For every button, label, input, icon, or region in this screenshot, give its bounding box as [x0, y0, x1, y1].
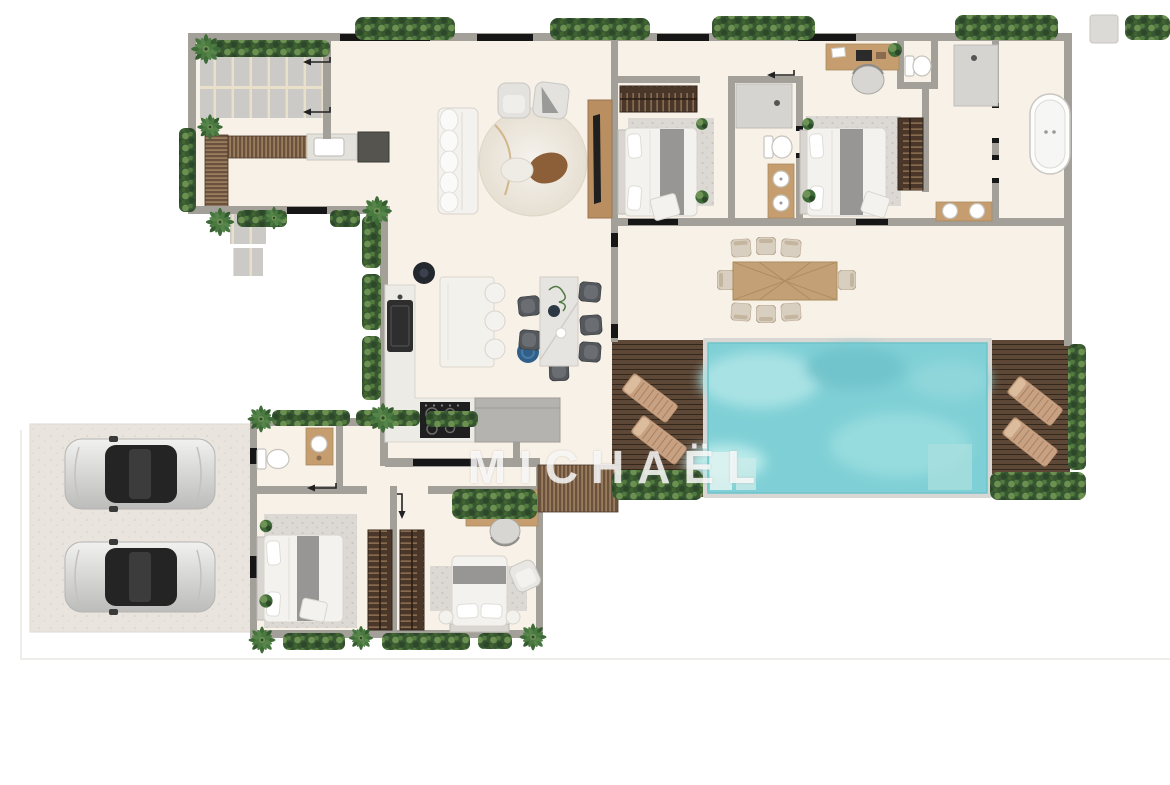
palm-tree	[206, 208, 234, 236]
hedge	[362, 274, 381, 330]
floor-plan-drawing	[0, 0, 1170, 785]
papers	[832, 47, 846, 57]
east-wall	[1064, 33, 1072, 346]
vanity-sink	[970, 204, 985, 219]
hedge	[712, 16, 815, 40]
bath-divider-c	[992, 180, 999, 222]
garage-door-mark	[250, 448, 257, 464]
palm-tree	[362, 196, 392, 226]
hedge	[355, 17, 455, 40]
palm-tree	[249, 627, 276, 654]
outdoor-chair	[780, 238, 801, 258]
pillow	[627, 186, 642, 211]
bar-stools	[485, 283, 505, 359]
potted-plant	[695, 190, 708, 203]
wood-bench-vertical	[205, 135, 228, 209]
toilet-wc	[905, 56, 931, 76]
bar-stool	[485, 311, 505, 331]
door-stop	[992, 155, 999, 160]
terrace-door-glass	[287, 207, 327, 214]
shower-drain	[774, 100, 780, 106]
toilet	[257, 449, 289, 469]
tv-console	[588, 100, 612, 218]
dining-table	[540, 277, 578, 366]
desk-plant	[888, 43, 902, 57]
bedroom-wing-south-wall	[611, 218, 1072, 226]
potted-plant	[260, 520, 272, 532]
outdoor-chair	[730, 238, 751, 257]
bath-divider-b	[992, 143, 999, 157]
watermark-text: MICHAËL	[438, 440, 798, 494]
bedroom-3	[257, 514, 392, 630]
bed-runner	[840, 129, 863, 215]
outdoor-dining-table	[733, 262, 837, 300]
glass-door-mark	[611, 233, 618, 247]
window-band	[657, 34, 709, 41]
outdoor-chair	[780, 302, 801, 321]
palm-tree	[349, 626, 373, 650]
pillow	[481, 603, 503, 618]
wc-south-wall	[897, 82, 938, 89]
pool-tanning-ledge	[928, 444, 972, 490]
coffee-table-white	[501, 158, 533, 182]
car-mirror	[109, 539, 118, 545]
palm-tree	[263, 207, 286, 230]
shower	[736, 84, 792, 128]
double-vanity	[936, 202, 992, 221]
pillow	[457, 603, 479, 618]
table-plate	[556, 328, 566, 338]
terrace-slider-glass	[856, 219, 888, 225]
hedge	[955, 15, 1058, 40]
toilet	[764, 136, 792, 158]
decor-pot-inner	[420, 269, 429, 278]
glass-door-mark	[611, 324, 618, 338]
hedge	[272, 410, 350, 426]
bar-stool	[485, 283, 505, 303]
armchair-with-throw	[532, 81, 570, 120]
desk-tray	[876, 52, 886, 59]
vanity	[768, 164, 794, 218]
bath-east-wall-a	[796, 83, 803, 128]
palm-tree	[520, 624, 547, 651]
pillow	[627, 134, 642, 159]
armchair	[498, 83, 530, 118]
desk-chair	[490, 518, 520, 544]
potted-plant	[802, 118, 814, 130]
table-bowl	[548, 305, 560, 317]
outdoor-chair	[756, 305, 776, 323]
kitchen-faucet	[398, 295, 403, 300]
laptop	[856, 50, 872, 61]
bath-west-wall	[728, 76, 735, 222]
bar-stool	[485, 339, 505, 359]
car-mirror	[109, 506, 118, 512]
hedge	[478, 633, 512, 649]
palm-tree	[368, 403, 398, 433]
palm-tree	[248, 406, 275, 433]
hedge	[1068, 344, 1086, 470]
hedge	[990, 472, 1086, 500]
hedge	[1125, 15, 1170, 40]
pillow	[266, 541, 281, 566]
wc-east-wall	[931, 41, 938, 88]
nightstand	[506, 610, 520, 624]
bath-north-wall	[728, 76, 803, 83]
equipment-pad	[1090, 15, 1118, 43]
door-stop	[992, 178, 999, 183]
outdoor-chair	[838, 270, 856, 290]
double-bed	[257, 535, 343, 622]
powder-room-wall	[336, 426, 343, 490]
hedge	[179, 128, 196, 212]
bedroom1-north-wall	[616, 76, 700, 83]
door-stop	[992, 138, 999, 143]
vanity-sink	[311, 436, 327, 452]
pillow	[809, 134, 824, 159]
bathtub	[1030, 94, 1070, 174]
kitchen-cabinet	[475, 398, 560, 442]
car-roof	[129, 449, 151, 499]
dining-chair	[518, 329, 542, 351]
car-mirror	[109, 609, 118, 615]
walkway-paver-2	[233, 248, 263, 276]
dining-chair	[578, 341, 601, 362]
potted-plant	[802, 189, 815, 202]
outdoor-chair	[730, 302, 751, 321]
potted-plant	[259, 594, 272, 607]
bbq-grill	[358, 132, 389, 162]
palm-tree	[191, 34, 221, 64]
paver-joint-line	[200, 86, 327, 89]
bed-runner	[453, 566, 506, 584]
hedge	[330, 210, 360, 227]
shower	[954, 45, 998, 106]
terrace-slider-glass	[628, 219, 678, 225]
window-band	[477, 34, 533, 41]
outdoor-sink	[314, 138, 344, 156]
hedge	[212, 40, 330, 57]
garage-door-mark	[250, 556, 257, 578]
dining-chair	[578, 281, 602, 303]
hedge	[283, 633, 345, 650]
double-bed-vertical	[450, 556, 509, 632]
sofa	[438, 108, 478, 214]
wood-bench-horizontal	[228, 136, 307, 158]
outdoor-chair	[717, 270, 735, 290]
vanity-sink	[943, 204, 958, 219]
car	[65, 436, 215, 512]
small-vanity	[306, 428, 333, 465]
nightstand	[439, 610, 453, 624]
outdoor-chair	[756, 237, 776, 255]
floor-plan-image: MICHAËL	[0, 0, 1170, 785]
tv	[593, 114, 601, 204]
dining-chair	[517, 295, 541, 317]
car-roof	[129, 552, 151, 602]
dining-chair	[579, 314, 602, 335]
car-mirror	[109, 436, 118, 442]
shower-drain	[971, 55, 977, 61]
hedge	[362, 336, 381, 400]
potted-plant	[696, 118, 708, 130]
hedge	[382, 633, 470, 650]
hedge	[426, 411, 478, 427]
palm-tree	[197, 114, 223, 140]
hedge	[550, 18, 650, 40]
car	[65, 539, 215, 615]
